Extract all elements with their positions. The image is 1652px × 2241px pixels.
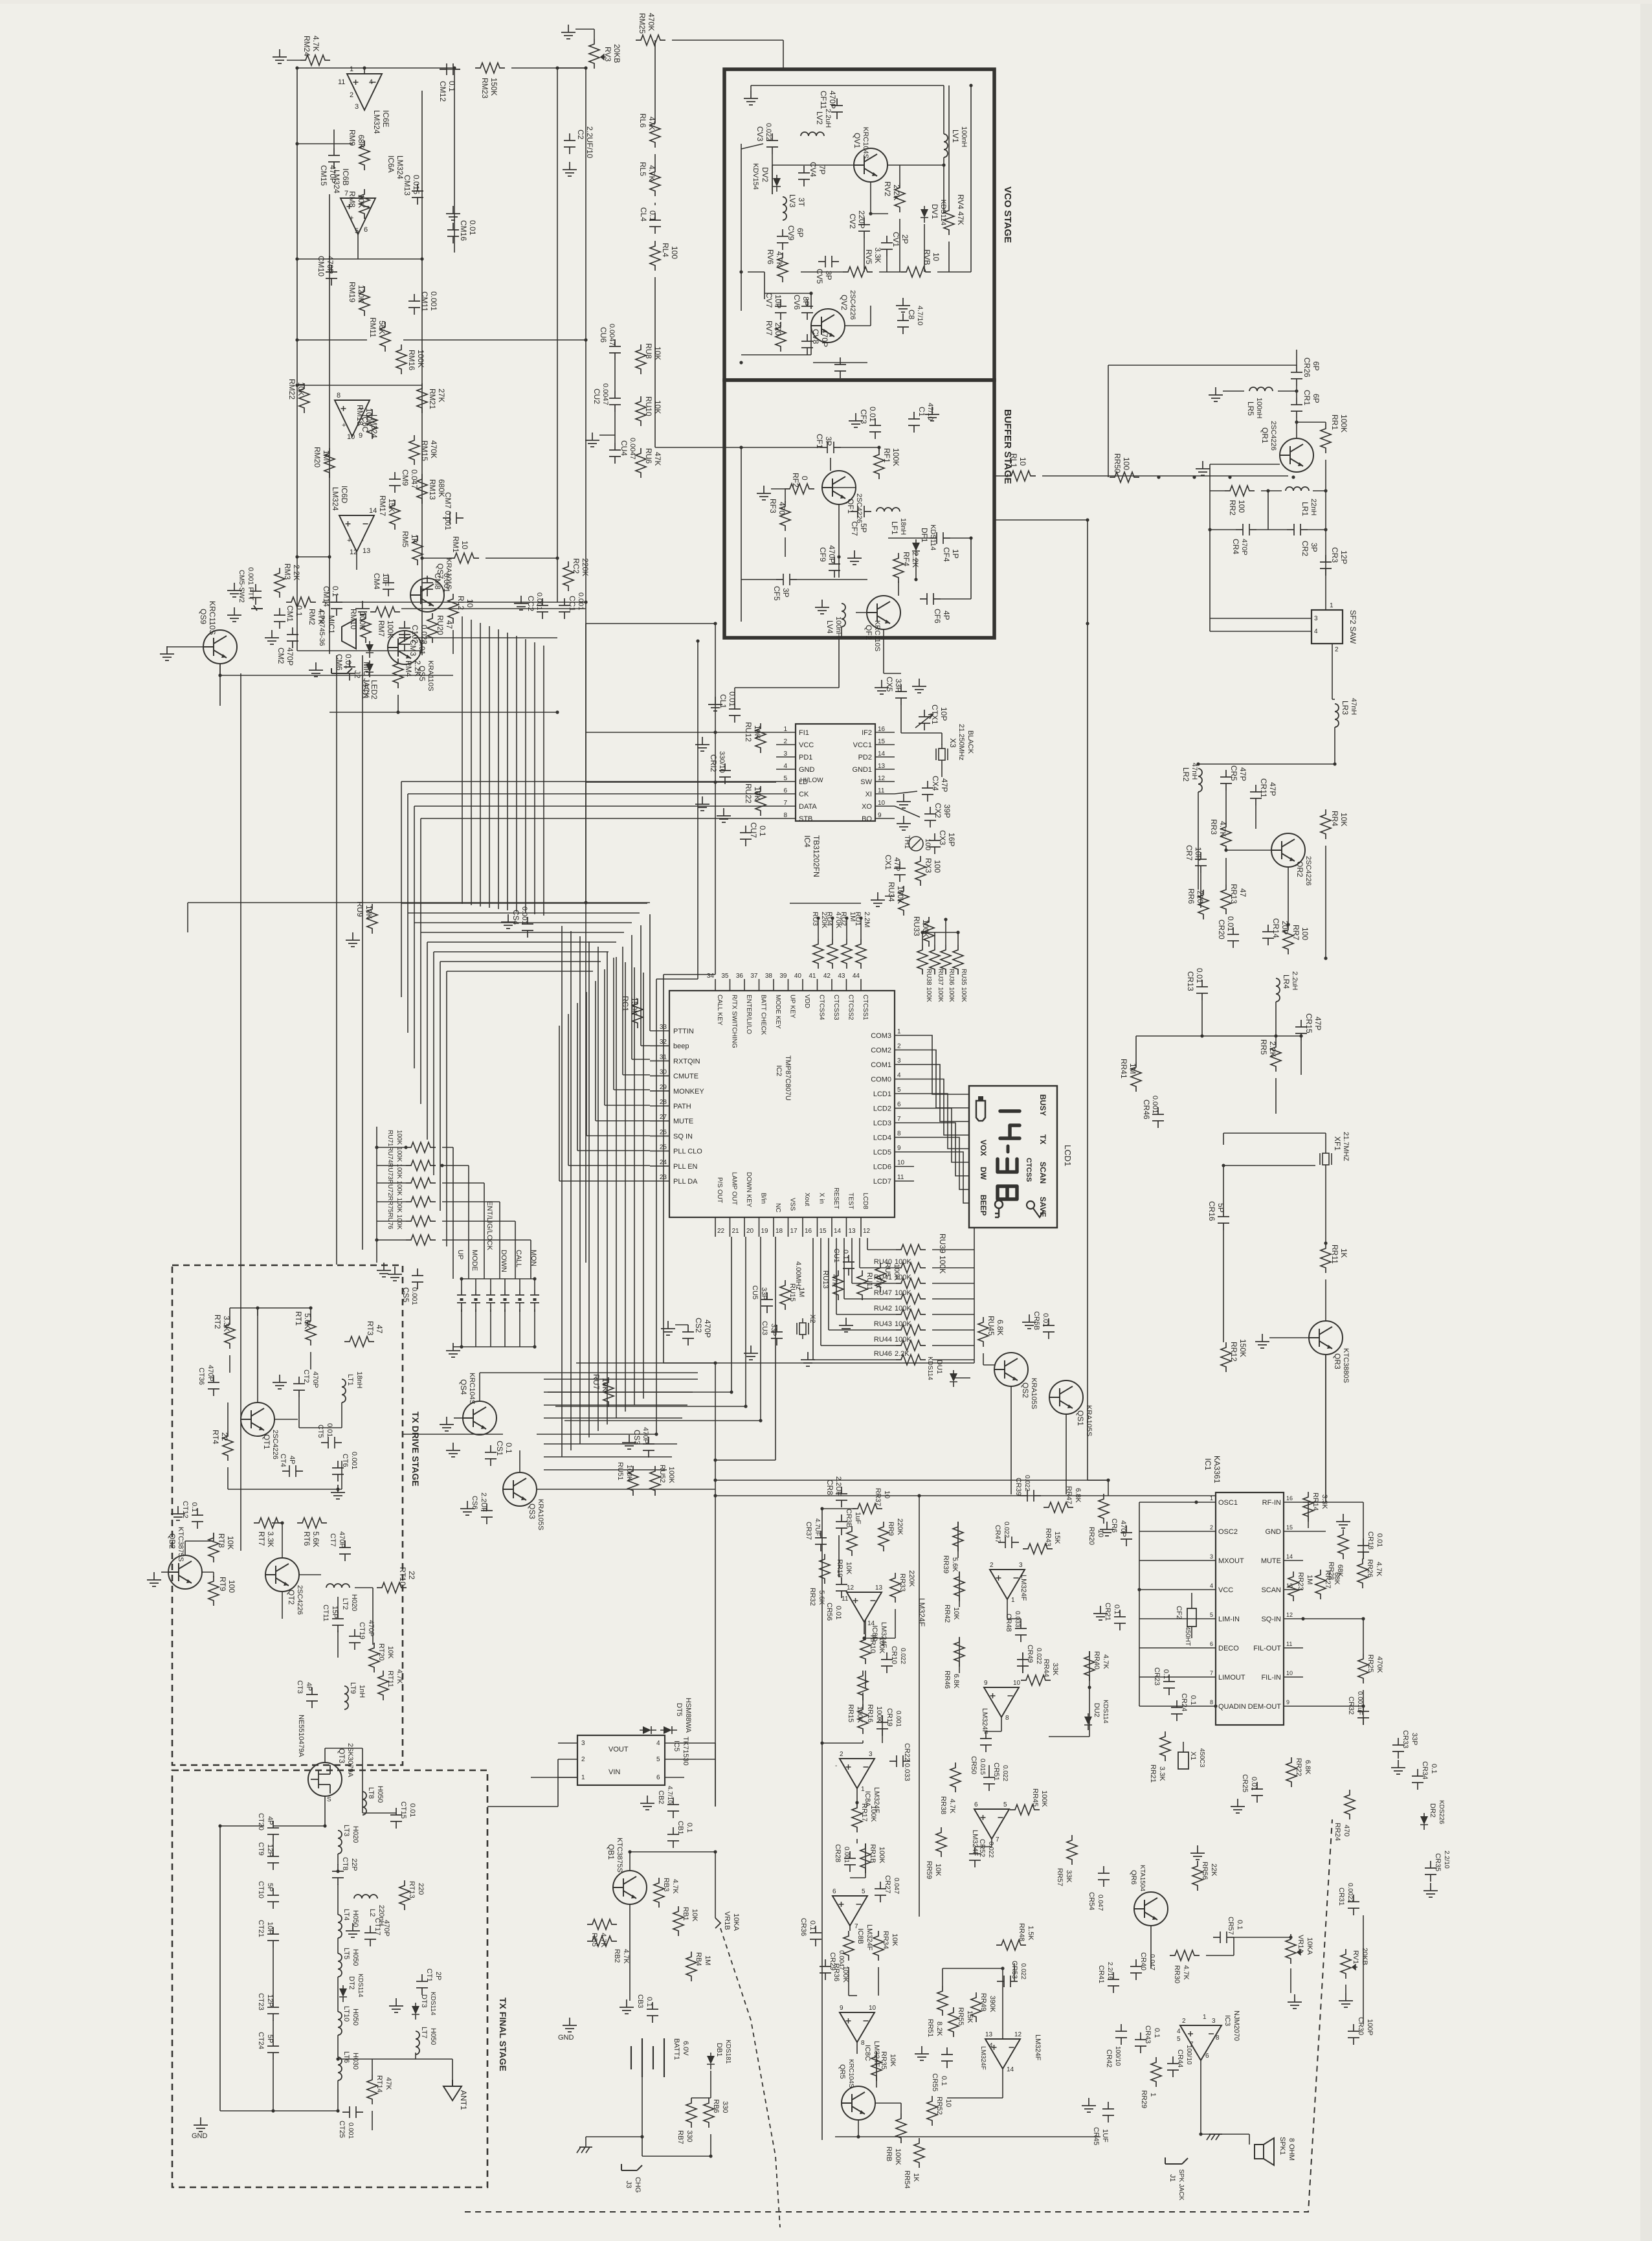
svg-text:3P: 3P (781, 588, 790, 598)
svg-text:VIN: VIN (608, 1768, 620, 1776)
svg-text:PD1: PD1 (799, 754, 812, 761)
svg-text:1M: 1M (1128, 1063, 1137, 1074)
svg-text:0.1: 0.1 (1153, 2028, 1161, 2038)
svg-text:0.0047: 0.0047 (608, 324, 616, 346)
svg-text:18nH: 18nH (355, 1371, 363, 1388)
svg-text:CR54: CR54 (1088, 1892, 1095, 1910)
svg-text:2SC4226: 2SC4226 (296, 1585, 304, 1615)
svg-text:KRC110S: KRC110S (873, 620, 881, 651)
svg-text:2.2K: 2.2K (895, 1350, 910, 1358)
svg-text:0.001: 0.001 (843, 1847, 850, 1863)
svg-text:21.250MHz: 21.250MHz (957, 724, 965, 760)
svg-text:470K: 470K (429, 440, 438, 458)
svg-text:MUTE: MUTE (1261, 1557, 1281, 1565)
svg-text:RU41: RU41 (874, 1274, 892, 1281)
svg-text:DEM-OUT: DEM-OUT (1248, 1703, 1282, 1711)
svg-text:VCC: VCC (799, 741, 814, 749)
svg-text:1P: 1P (951, 549, 960, 559)
svg-text:CALL KEY: CALL KEY (716, 995, 723, 1026)
svg-text:LV2: LV2 (815, 111, 824, 125)
svg-text:470K: 470K (647, 13, 656, 31)
svg-text:0.001 PTT: 0.001 PTT (247, 567, 254, 601)
svg-text:RU10: RU10 (644, 396, 653, 416)
svg-text:P/S OUT: P/S OUT (716, 1177, 723, 1203)
svg-text:H050: H050 (352, 1949, 359, 1966)
svg-text:12: 12 (878, 775, 886, 782)
svg-text:8: 8 (1210, 1699, 1213, 1706)
svg-text:CU3: CU3 (761, 1321, 768, 1335)
svg-text:0.015: 0.015 (979, 1759, 986, 1775)
svg-text:9: 9 (897, 1145, 901, 1152)
svg-text:16P: 16P (947, 833, 956, 846)
svg-text:LCD4: LCD4 (873, 1134, 891, 1142)
svg-text:7: 7 (783, 800, 787, 807)
svg-text:15: 15 (1286, 1524, 1293, 1531)
svg-text:68K: 68K (1336, 1564, 1344, 1577)
svg-text:11: 11 (338, 78, 345, 86)
svg-text:10K: 10K (357, 194, 366, 208)
svg-text:0.1: 0.1 (809, 1920, 816, 1930)
svg-text:RX3: RX3 (924, 858, 933, 873)
svg-text:C8: C8 (907, 310, 916, 320)
svg-text:LT4: LT4 (342, 1909, 350, 1920)
svg-text:CMUTE: CMUTE (673, 1073, 698, 1081)
svg-text:16: 16 (1286, 1495, 1293, 1502)
svg-text:MONKEY: MONKEY (673, 1088, 704, 1096)
svg-text:CM1: CM1 (285, 605, 295, 622)
svg-text:CS1: CS1 (495, 1441, 504, 1456)
svg-text:LF1: LF1 (890, 521, 899, 535)
svg-text:IC8C: IC8C (864, 2045, 871, 2061)
svg-text:20KB: 20KB (1361, 1948, 1368, 1965)
svg-text:CR37: CR37 (805, 1522, 812, 1540)
svg-text:0.022: 0.022 (987, 1841, 994, 1858)
svg-text:0.1: 0.1 (1236, 1920, 1244, 1930)
svg-text:RR57: RR57 (1056, 1868, 1064, 1886)
svg-text:1: 1 (897, 1028, 901, 1035)
svg-text:RV6: RV6 (766, 249, 775, 264)
svg-text:IC6B: IC6B (341, 168, 350, 186)
svg-text:RF4: RF4 (902, 552, 911, 567)
svg-text:33P: 33P (760, 1287, 768, 1300)
svg-text:4P: 4P (942, 611, 951, 620)
svg-text:CT12: CT12 (181, 1501, 189, 1518)
svg-text:CX5: CX5 (885, 677, 894, 692)
svg-text:14: 14 (1286, 1553, 1293, 1560)
svg-text:10: 10 (869, 2005, 876, 2012)
svg-text:RR19: RR19 (836, 1559, 843, 1577)
svg-text:47P: 47P (1313, 1017, 1323, 1030)
svg-text:0.01: 0.01 (1250, 1777, 1258, 1790)
svg-text:CR45: CR45 (1092, 2127, 1100, 2145)
svg-text:35: 35 (721, 973, 729, 980)
svg-text:CM5-SW2: CM5-SW2 (238, 570, 245, 603)
svg-text:XF1: XF1 (1333, 1136, 1342, 1151)
svg-text:LR2: LR2 (1181, 767, 1190, 782)
svg-text:11: 11 (842, 1595, 849, 1603)
svg-text:100K: 100K (895, 1258, 911, 1266)
svg-text:CM11: CM11 (420, 291, 429, 311)
svg-text:0.022: 0.022 (1001, 1765, 1009, 1781)
svg-text:22: 22 (220, 1432, 229, 1441)
svg-text:KDS114: KDS114 (929, 524, 937, 550)
svg-text:CR26: CR26 (1302, 357, 1312, 377)
svg-text:4.7K: 4.7K (647, 165, 656, 181)
svg-text:RL5: RL5 (638, 162, 647, 176)
svg-text:10P: 10P (266, 1922, 274, 1935)
svg-text:5.6K: 5.6K (951, 1557, 959, 1572)
svg-text:2.2UF: 2.2UF (480, 1492, 487, 1512)
svg-text:10K: 10K (934, 1864, 942, 1876)
svg-text:QR6: QR6 (1130, 1870, 1137, 1885)
svg-text:NE5510479A: NE5510479A (297, 1715, 305, 1757)
svg-text:4P: 4P (305, 1682, 313, 1691)
svg-text:100: 100 (1122, 457, 1131, 470)
svg-text:100K: 100K (896, 886, 905, 904)
svg-text:CM14: CM14 (322, 586, 331, 607)
svg-text:RR49: RR49 (979, 1993, 987, 2011)
svg-text:QF2: QF2 (864, 625, 873, 640)
svg-text:RM19: RM19 (348, 282, 357, 302)
svg-text:KRC110S: KRC110S (208, 601, 217, 635)
svg-text:SCAN: SCAN (1261, 1586, 1281, 1594)
svg-text:CR46: CR46 (1142, 1099, 1151, 1120)
svg-text:10: 10 (1286, 1670, 1293, 1676)
svg-text:1uF: 1uF (381, 573, 390, 587)
svg-text:KTC3880S: KTC3880S (1342, 1348, 1350, 1383)
svg-text:RU20: RU20 (436, 615, 445, 635)
svg-text:4: 4 (656, 1740, 660, 1747)
svg-text:RR34: RR34 (882, 1931, 889, 1949)
svg-text:RR55: RR55 (957, 2007, 965, 2025)
svg-text:100K: 100K (625, 1465, 633, 1481)
svg-text:0.01: 0.01 (344, 654, 353, 670)
svg-text:CT36: CT36 (197, 1368, 205, 1385)
svg-text:H030: H030 (352, 2053, 359, 2069)
svg-text:4: 4 (897, 1072, 901, 1079)
svg-text:4P: 4P (288, 1456, 296, 1464)
svg-text:CX4: CX4 (931, 776, 940, 791)
svg-text:H050: H050 (352, 2009, 359, 2025)
svg-text:RT1: RT1 (294, 1311, 303, 1326)
svg-text:2: 2 (350, 91, 353, 99)
svg-text:GND1: GND1 (852, 766, 872, 774)
svg-text:CT11: CT11 (322, 1605, 329, 1621)
svg-text:12: 12 (847, 1584, 854, 1592)
svg-text:RR15: RR15 (847, 1704, 854, 1722)
svg-text:KRC104S: KRC104S (862, 127, 869, 159)
svg-text:4.7K: 4.7K (622, 1949, 630, 1964)
svg-text:2.2UF: 2.2UF (834, 1476, 842, 1496)
svg-text:FIL-OUT: FIL-OUT (1253, 1645, 1281, 1652)
svg-text:SQ IN: SQ IN (673, 1132, 693, 1140)
svg-text:BUFFER STAGE: BUFFER STAGE (1002, 409, 1013, 484)
svg-text:CU7: CU7 (749, 822, 758, 838)
svg-text:CR25: CR25 (1241, 1774, 1249, 1792)
svg-text:34: 34 (707, 973, 715, 980)
svg-text:LT2: LT2 (341, 1598, 349, 1610)
svg-text:2: 2 (1335, 646, 1339, 653)
svg-text:470: 470 (1343, 1825, 1350, 1836)
svg-text:RR44: RR44 (1042, 1659, 1050, 1677)
svg-text:LT10: LT10 (342, 2006, 350, 2021)
svg-text:470P: 470P (1240, 539, 1248, 556)
svg-text:470P: 470P (703, 1320, 712, 1338)
svg-text:LM324F: LM324F (1020, 1575, 1027, 1601)
svg-text:PLL EN: PLL EN (673, 1163, 698, 1171)
svg-text:1: 1 (581, 1774, 585, 1781)
svg-text:2SC4226: 2SC4226 (271, 1430, 279, 1459)
svg-text:0.01: 0.01 (728, 692, 737, 707)
svg-text:4.7K: 4.7K (1182, 1965, 1190, 1980)
svg-text:21: 21 (732, 1228, 740, 1235)
svg-text:CR16: CR16 (1207, 1201, 1216, 1221)
svg-text:0.01: 0.01 (468, 220, 477, 236)
svg-text:RT11: RT11 (386, 1671, 394, 1687)
svg-text:CM16: CM16 (459, 220, 468, 241)
svg-text:LCD1: LCD1 (1063, 1145, 1073, 1166)
svg-text:0.0047: 0.0047 (601, 383, 609, 405)
svg-text:CF4: CF4 (942, 547, 951, 562)
svg-text:10K: 10K (653, 346, 662, 360)
svg-text:100nH: 100nH (1255, 398, 1263, 418)
svg-text:0.01: 0.01 (1376, 1533, 1383, 1547)
svg-text:VOUT: VOUT (608, 1746, 629, 1753)
svg-text:RR3: RR3 (1209, 819, 1218, 835)
svg-text:RU42: RU42 (874, 1305, 892, 1312)
svg-text:HI/LOW: HI/LOW (800, 777, 823, 784)
svg-text:RU11: RU11 (865, 1272, 873, 1290)
svg-text:6.8K: 6.8K (952, 1674, 960, 1689)
svg-text:4: 4 (1177, 2028, 1181, 2035)
svg-text:CR5: CR5 (1229, 765, 1238, 781)
svg-text:1M: 1M (322, 450, 331, 461)
svg-text:RB2: RB2 (613, 1949, 621, 1963)
svg-text:NC: NC (774, 1203, 781, 1212)
svg-text:9: 9 (359, 432, 363, 440)
svg-text:DT3: DT3 (420, 1994, 428, 2008)
svg-text:RR43: RR43 (1044, 1528, 1052, 1546)
svg-text:100K: 100K (416, 350, 425, 368)
svg-text:330: 330 (686, 2130, 693, 2142)
svg-text:RL6: RL6 (638, 113, 647, 128)
svg-text:TX DRIVE STAGE: TX DRIVE STAGE (410, 1412, 421, 1487)
svg-text:IC3: IC3 (1223, 2015, 1231, 2026)
svg-text:CT2: CT2 (302, 1369, 310, 1383)
svg-text:6.8K: 6.8K (996, 1320, 1005, 1336)
svg-text:4.7K: 4.7K (671, 1879, 679, 1894)
svg-text:5.6K: 5.6K (311, 1531, 320, 1548)
svg-text:RU46: RU46 (874, 1350, 892, 1358)
svg-text:39: 39 (779, 973, 787, 980)
svg-text:LM324: LM324 (332, 170, 341, 194)
svg-text:HSM88WA: HSM88WA (684, 1698, 692, 1733)
svg-text:RR41: RR41 (1119, 1059, 1128, 1079)
svg-text:RR32: RR32 (809, 1588, 816, 1606)
svg-text:RT7: RT7 (257, 1531, 266, 1546)
svg-text:RR59: RR59 (925, 1861, 933, 1879)
svg-text:RF-IN: RF-IN (1262, 1499, 1281, 1507)
svg-text:11: 11 (897, 1174, 904, 1181)
svg-text:47: 47 (445, 620, 454, 629)
svg-text:CT17: CT17 (374, 1918, 381, 1935)
svg-text:2: 2 (897, 1043, 901, 1050)
svg-text:RR7: RR7 (1291, 925, 1300, 940)
svg-text:10K: 10K (364, 905, 374, 919)
svg-text:47nH: 47nH (1190, 763, 1198, 780)
svg-text:2.2uH: 2.2uH (824, 109, 832, 128)
svg-text:CR3B: CR3B (845, 1509, 853, 1527)
svg-text:27K: 27K (437, 389, 446, 402)
svg-text:RR1B: RR1B (869, 1844, 876, 1863)
svg-text:1: 1 (1330, 602, 1334, 609)
svg-text:ANT1: ANT1 (459, 2090, 468, 2110)
svg-text:4P: 4P (266, 1816, 274, 1825)
svg-text:0.0047: 0.0047 (838, 1950, 845, 1970)
svg-text:10K: 10K (753, 787, 762, 800)
svg-text:2.2/16: 2.2/16 (1106, 1962, 1113, 1980)
svg-text:CRI2: CRI2 (709, 754, 718, 772)
svg-text:1: 1 (1210, 1495, 1213, 1502)
svg-text:RB1: RB1 (682, 1907, 689, 1920)
svg-text:1: 1 (350, 65, 353, 73)
svg-text:OSC2: OSC2 (1218, 1528, 1238, 1536)
svg-text:MODE KEY: MODE KEY (774, 995, 781, 1029)
svg-text:10K: 10K (386, 1646, 394, 1659)
svg-text:20KB: 20KB (612, 44, 621, 63)
svg-text:RM7: RM7 (377, 620, 386, 637)
svg-text:3: 3 (1314, 615, 1318, 622)
svg-text:RM2: RM2 (307, 609, 317, 625)
svg-text:33K: 33K (1051, 1663, 1059, 1676)
svg-text:43: 43 (838, 973, 845, 980)
svg-text:100K: 100K (386, 620, 395, 638)
svg-text:LCD5: LCD5 (873, 1149, 891, 1156)
svg-text:CF2: CF2 (1175, 1606, 1183, 1619)
svg-text:CR48: CR48 (1005, 1614, 1012, 1632)
svg-text:RU47: RU47 (874, 1289, 892, 1297)
svg-text:17: 17 (790, 1228, 798, 1235)
svg-text:5.6K: 5.6K (818, 1590, 825, 1605)
svg-text:VSS: VSS (789, 1198, 796, 1211)
svg-text:CR40: CR40 (1139, 1952, 1147, 1970)
svg-text:220: 220 (417, 1883, 425, 1895)
svg-text:RM3: RM3 (283, 563, 292, 580)
svg-text:8.2K: 8.2K (935, 2021, 943, 2036)
svg-text:RL4: RL4 (661, 243, 670, 257)
svg-text:13: 13 (849, 1228, 856, 1235)
svg-text:CT10: CT10 (257, 1881, 265, 1898)
svg-text:100/10: 100/10 (1185, 2045, 1192, 2065)
svg-text:R/TX SWITCHING: R/TX SWITCHING (731, 995, 738, 1048)
svg-text:14: 14 (878, 750, 886, 758)
svg-text:0.001uF: 0.001uF (1356, 1691, 1363, 1715)
svg-text:3T: 3T (797, 197, 806, 207)
svg-text:100K: 100K (878, 1847, 886, 1864)
svg-text:RT8: RT8 (217, 1533, 226, 1548)
svg-text:CL1: CL1 (719, 694, 728, 708)
svg-text:KDV154: KDV154 (752, 163, 759, 190)
svg-text:CS6: CS6 (471, 1496, 478, 1509)
svg-text:RU45: RU45 (987, 1316, 996, 1336)
svg-text:68K: 68K (357, 135, 366, 148)
svg-text:VCC1: VCC1 (853, 741, 872, 749)
svg-text:KRA101S: KRA101S (445, 558, 452, 589)
svg-text:CR21: CR21 (1104, 1603, 1111, 1621)
svg-text:CR22 0.033: CR22 0.033 (903, 1743, 911, 1781)
svg-text:0.047: 0.047 (410, 469, 419, 489)
svg-text:MIC1: MIC1 (327, 615, 336, 634)
svg-text:470: 470 (777, 502, 787, 515)
svg-text:QS5: QS5 (418, 666, 427, 681)
svg-text:CU5: CU5 (751, 1285, 759, 1300)
svg-text:9: 9 (984, 1680, 988, 1687)
svg-text:7: 7 (1210, 1670, 1213, 1676)
svg-text:12: 12 (1286, 1612, 1293, 1618)
svg-text:H050: H050 (429, 2028, 437, 2045)
svg-text:470P: 470P (642, 1427, 649, 1444)
svg-text:CT3: CT3 (296, 1680, 304, 1694)
svg-text:2SC4226: 2SC4226 (1269, 421, 1277, 451)
svg-text:IC5: IC5 (673, 1740, 680, 1751)
svg-text:470P: 470P (206, 1365, 214, 1382)
svg-text:CR49: CR49 (1026, 1645, 1034, 1663)
svg-text:1: 1 (1011, 1597, 1015, 1604)
svg-text:IC6C: IC6C (361, 414, 370, 433)
svg-text:CF7: CF7 (850, 521, 859, 536)
svg-text:RB3: RB3 (662, 1878, 670, 1891)
svg-text:GND: GND (1266, 1528, 1282, 1536)
svg-text:21.7MHZ: 21.7MHZ (1342, 1132, 1350, 1162)
svg-text:0.1: 0.1 (504, 1443, 513, 1454)
svg-text:RR23: RR23 (1297, 1572, 1304, 1590)
svg-text:470K: 470K (1376, 1656, 1383, 1673)
svg-text:CT24: CT24 (257, 2032, 265, 2049)
svg-text:RR50: RR50 (1113, 453, 1122, 473)
svg-text:CM6: CM6 (335, 654, 344, 671)
svg-text:3: 3 (783, 750, 787, 758)
svg-text:0.1: 0.1 (1430, 1764, 1438, 1774)
svg-text:0.01: 0.01 (1195, 968, 1204, 984)
svg-text:CV8: CV8 (811, 329, 820, 344)
svg-text:CM7 0.001: CM7 0.001 (443, 492, 452, 530)
svg-text:TB31202FN: TB31202FN (812, 835, 821, 877)
svg-text:2: 2 (581, 1756, 585, 1763)
svg-text:100K: 100K (891, 448, 900, 466)
svg-text:RR6: RR6 (1187, 888, 1196, 904)
svg-text:QS3: QS3 (528, 1503, 537, 1519)
svg-text:6: 6 (974, 1801, 978, 1808)
svg-text:QB1: QB1 (607, 1844, 616, 1860)
svg-text:3: 3 (1212, 2018, 1216, 2025)
svg-text:0.1: 0.1 (331, 586, 340, 597)
svg-text:IC6D: IC6D (340, 486, 349, 504)
svg-text:KTC3875S: KTC3875S (616, 1838, 623, 1873)
svg-text:2SC4226: 2SC4226 (855, 493, 863, 523)
svg-text:DT5: DT5 (675, 1703, 683, 1717)
svg-text:LED1: LED1 (361, 680, 370, 699)
svg-text:450HT: 450HT (1184, 1627, 1191, 1646)
svg-text:MXOUT: MXOUT (1218, 1557, 1244, 1565)
svg-text:0.0022: 0.0022 (1346, 1883, 1354, 1903)
svg-text:2.2K: 2.2K (1268, 1041, 1277, 1057)
svg-text:0: 0 (800, 476, 809, 480)
svg-text:10K: 10K (952, 1607, 960, 1620)
svg-text:RR17: RR17 (860, 1803, 868, 1821)
svg-text:CR47: CR47 (994, 1525, 1001, 1543)
svg-text:UP: UP (456, 1250, 464, 1259)
svg-text:220K: 220K (896, 1518, 904, 1535)
